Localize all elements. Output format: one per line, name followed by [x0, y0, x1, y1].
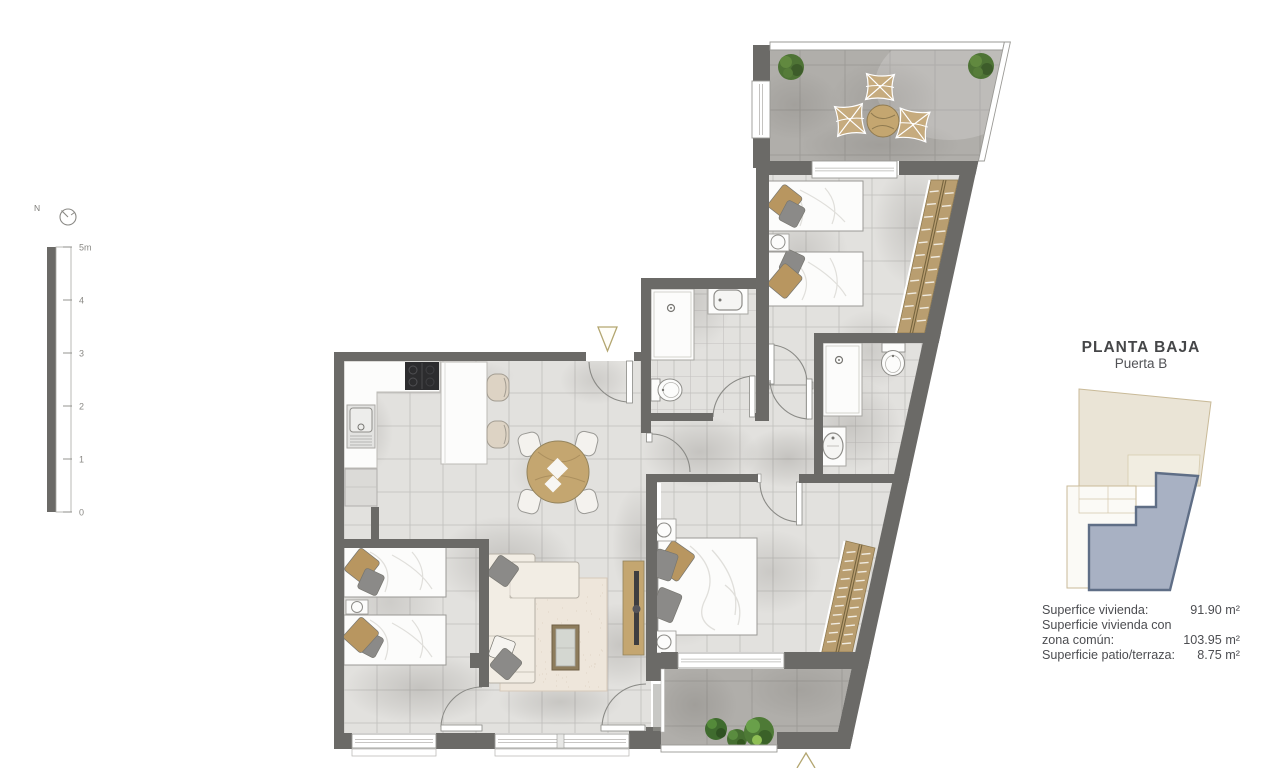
svg-text:2: 2 — [79, 402, 84, 412]
svg-text:5m: 5m — [79, 243, 92, 253]
svg-text:N: N — [34, 203, 40, 213]
svg-text:Superficie patio/terraza:: Superficie patio/terraza: — [1042, 648, 1175, 662]
svg-text:103.95 m²: 103.95 m² — [1183, 633, 1240, 647]
svg-text:Superficie vivienda con: Superficie vivienda con — [1042, 618, 1172, 632]
svg-text:zona común:: zona común: — [1042, 633, 1114, 647]
svg-text:PLANTA BAJA: PLANTA BAJA — [1082, 339, 1201, 356]
svg-text:Superfice vivienda:: Superfice vivienda: — [1042, 603, 1148, 617]
svg-text:91.90 m²: 91.90 m² — [1190, 603, 1240, 617]
svg-text:3: 3 — [79, 349, 84, 359]
svg-text:Puerta B: Puerta B — [1115, 356, 1168, 371]
svg-text:1: 1 — [79, 455, 84, 465]
svg-text:4: 4 — [79, 296, 84, 306]
svg-text:8.75 m²: 8.75 m² — [1197, 648, 1240, 662]
svg-text:0: 0 — [79, 508, 84, 518]
